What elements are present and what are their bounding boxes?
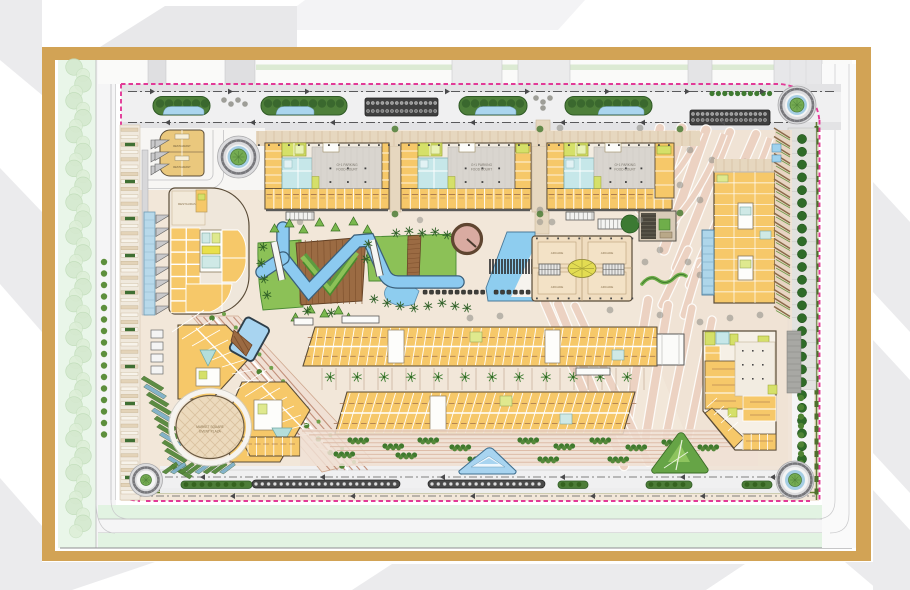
svg-text:ARCADE: ARCADE [551,251,564,255]
svg-text:RESTAURANT: RESTAURANT [173,144,191,148]
svg-text:ARCADE: ARCADE [551,285,564,289]
svg-text:EVENT PLAZA: EVENT PLAZA [199,430,221,434]
svg-text:G+1 PARKING: G+1 PARKING [471,163,493,167]
svg-text:G+1 PARKING: G+1 PARKING [336,163,358,167]
svg-text:RESTAURANT: RESTAURANT [173,165,191,169]
svg-text:FOOD COURT: FOOD COURT [471,167,492,171]
svg-text:FOOD COURT: FOOD COURT [336,167,357,171]
svg-text:ARCADE: ARCADE [601,285,614,289]
svg-text:G+1 PARKING: G+1 PARKING [614,163,636,167]
svg-text:FOOD COURT: FOOD COURT [614,167,635,171]
svg-text:MARKET SQUARE: MARKET SQUARE [196,425,224,429]
svg-text:ARCADE: ARCADE [601,251,614,255]
svg-text:RESTAURANT: RESTAURANT [178,202,198,206]
